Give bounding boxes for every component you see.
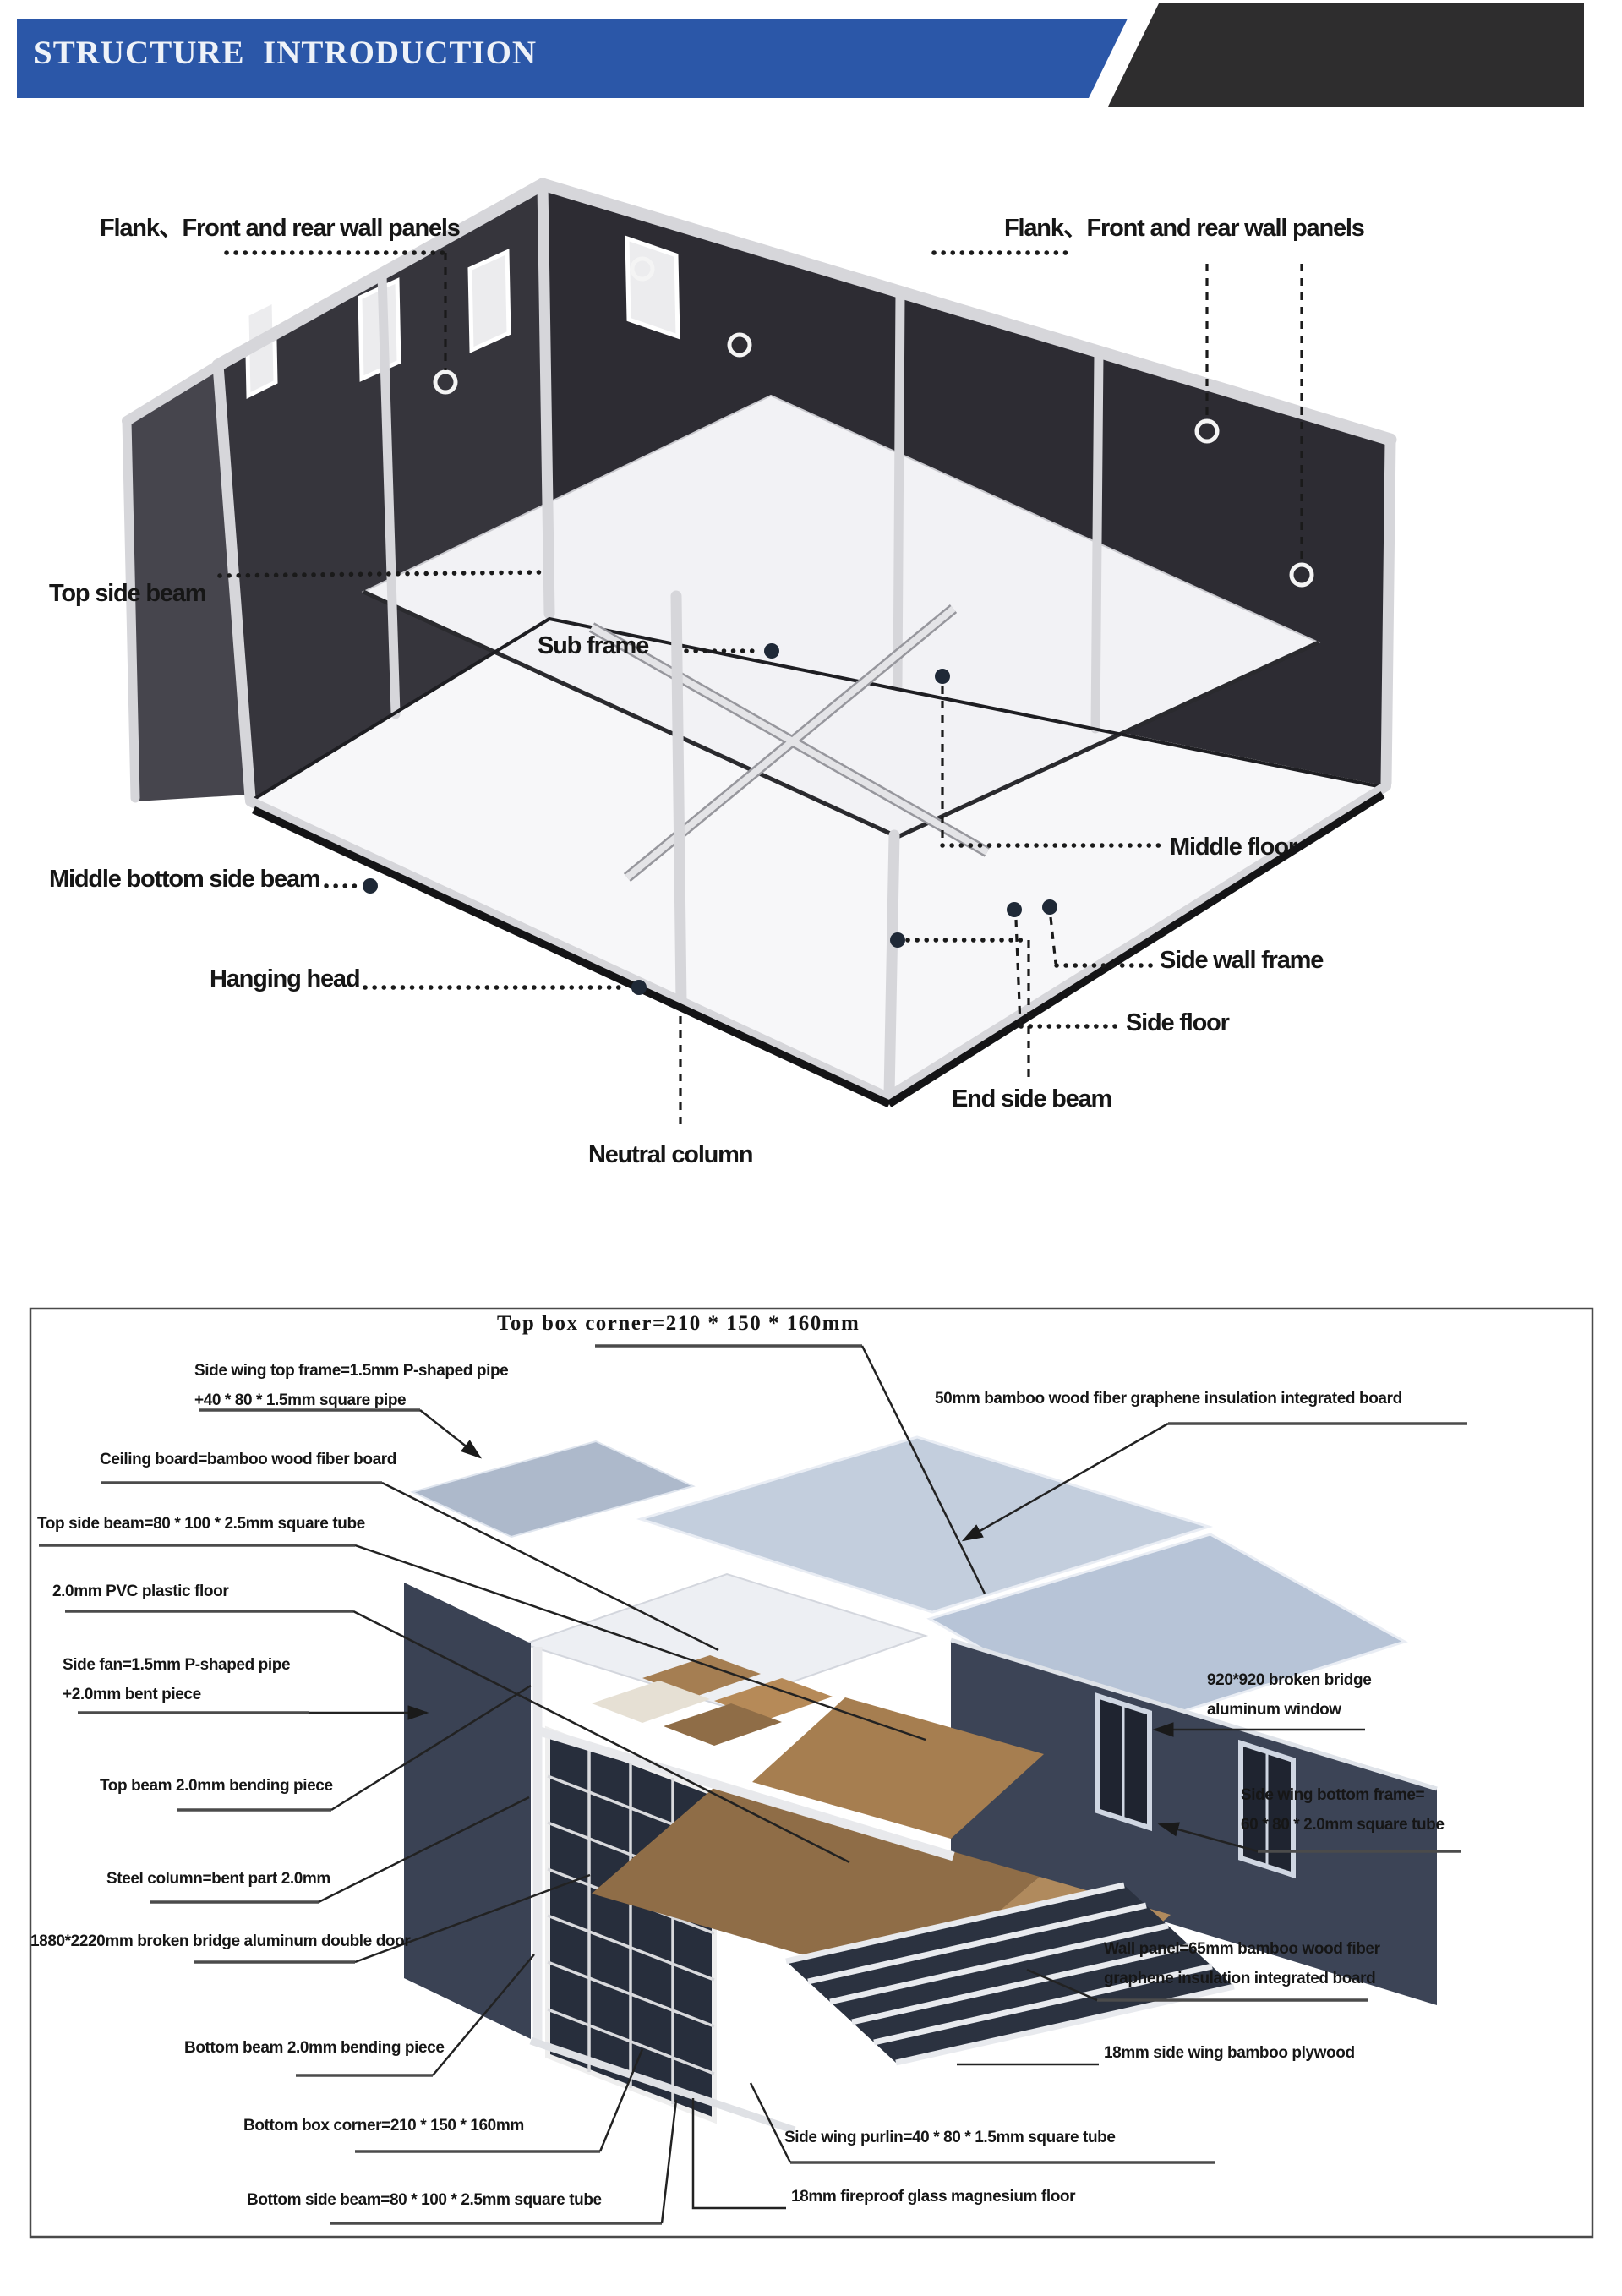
- label-line: Side wing bottom frame=: [1241, 1780, 1445, 1810]
- label-side-wing-top-frame: Side wing top frame=1.5mm P-shaped pipe …: [194, 1356, 508, 1415]
- label-side-fan: Side fan=1.5mm P-shaped pipe +2.0mm bent…: [63, 1650, 290, 1709]
- window: [627, 238, 678, 336]
- structure-introduction-page: STRUCTURE INTRODUCTION Flank、Front and r…: [0, 0, 1622, 2296]
- label-side-wall-frame: Side wall frame: [1160, 947, 1323, 975]
- label-side-wing-purlin: Side wing purlin=40 * 80 * 1.5mm square …: [784, 2129, 1116, 2147]
- label-wall-panel: Wall panel=65mm bamboo wood fiber graphe…: [1104, 1934, 1380, 1993]
- label-aluminum-double-door: 1880*2220mm broken bridge aluminum doubl…: [30, 1932, 410, 1951]
- neutral-column-beam: [676, 596, 681, 1003]
- label-ceiling-board: Ceiling board=bamboo wood fiber board: [100, 1451, 396, 1469]
- header-dark-parallelogram: [1108, 3, 1584, 107]
- label-line: Side fan=1.5mm P-shaped pipe: [63, 1650, 290, 1680]
- label-line: 920*920 broken bridge: [1207, 1665, 1371, 1695]
- label-line: +40 * 80 * 1.5mm square pipe: [194, 1386, 508, 1415]
- label-line: graphene insulation integrated board: [1104, 1964, 1380, 1993]
- label-side-wing-bamboo-plywood: 18mm side wing bamboo plywood: [1104, 2044, 1355, 2063]
- left-wing-wall: [404, 1583, 531, 2039]
- label-top-side-beam-spec: Top side beam=80 * 100 * 2.5mm square tu…: [37, 1515, 365, 1533]
- expandable-container-illustration: [30, 1309, 1592, 2237]
- label-pvc-plastic-floor: 2.0mm PVC plastic floor: [52, 1583, 228, 1601]
- page-title: STRUCTURE INTRODUCTION: [34, 34, 537, 72]
- label-bottom-side-beam-spec: Bottom side beam=80 * 100 * 2.5mm square…: [247, 2191, 602, 2210]
- label-top-beam-bending-piece: Top beam 2.0mm bending piece: [100, 1777, 333, 1796]
- label-bottom-beam-bending-piece: Bottom beam 2.0mm bending piece: [184, 2039, 445, 2058]
- label-line: +2.0mm bent piece: [63, 1680, 290, 1709]
- label-top-side-beam: Top side beam: [49, 580, 205, 608]
- label-line: Wall panel=65mm bamboo wood fiber: [1104, 1934, 1380, 1964]
- label-insulation-board-50mm: 50mm bamboo wood fiber graphene insulati…: [935, 1390, 1402, 1408]
- window: [470, 252, 509, 350]
- label-side-floor: Side floor: [1126, 1009, 1229, 1037]
- label-neutral-column: Neutral column: [588, 1141, 752, 1169]
- label-sub-frame: Sub frame: [538, 632, 648, 660]
- label-fireproof-magnesium-floor: 18mm fireproof glass magnesium floor: [791, 2188, 1075, 2206]
- label-line: 60 * 80 * 2.0mm square tube: [1241, 1810, 1445, 1840]
- label-side-wing-bottom-frame: Side wing bottom frame= 60 * 80 * 2.0mm …: [1241, 1780, 1445, 1840]
- label-aluminum-window-920: 920*920 broken bridge aluminum window: [1207, 1665, 1371, 1725]
- label-flank-wall-panels-left: Flank、Front and rear wall panels: [100, 208, 460, 243]
- label-flank-wall-panels-right: Flank、Front and rear wall panels: [1004, 208, 1364, 243]
- label-line: Side wing top frame=1.5mm P-shaped pipe: [194, 1356, 508, 1386]
- label-bottom-box-corner: Bottom box corner=210 * 150 * 160mm: [243, 2117, 524, 2135]
- glass-double-door: [548, 1730, 714, 2120]
- label-line: aluminum window: [1207, 1695, 1371, 1725]
- label-steel-column: Steel column=bent part 2.0mm: [106, 1870, 330, 1889]
- label-middle-bottom-side-beam: Middle bottom side beam: [49, 866, 319, 894]
- label-top-box-corner: Top box corner=210 * 150 * 160mm: [497, 1312, 860, 1336]
- label-hanging-head: Hanging head: [210, 965, 359, 993]
- label-end-side-beam: End side beam: [952, 1085, 1111, 1113]
- label-middle-floor: Middle floor: [1170, 834, 1297, 861]
